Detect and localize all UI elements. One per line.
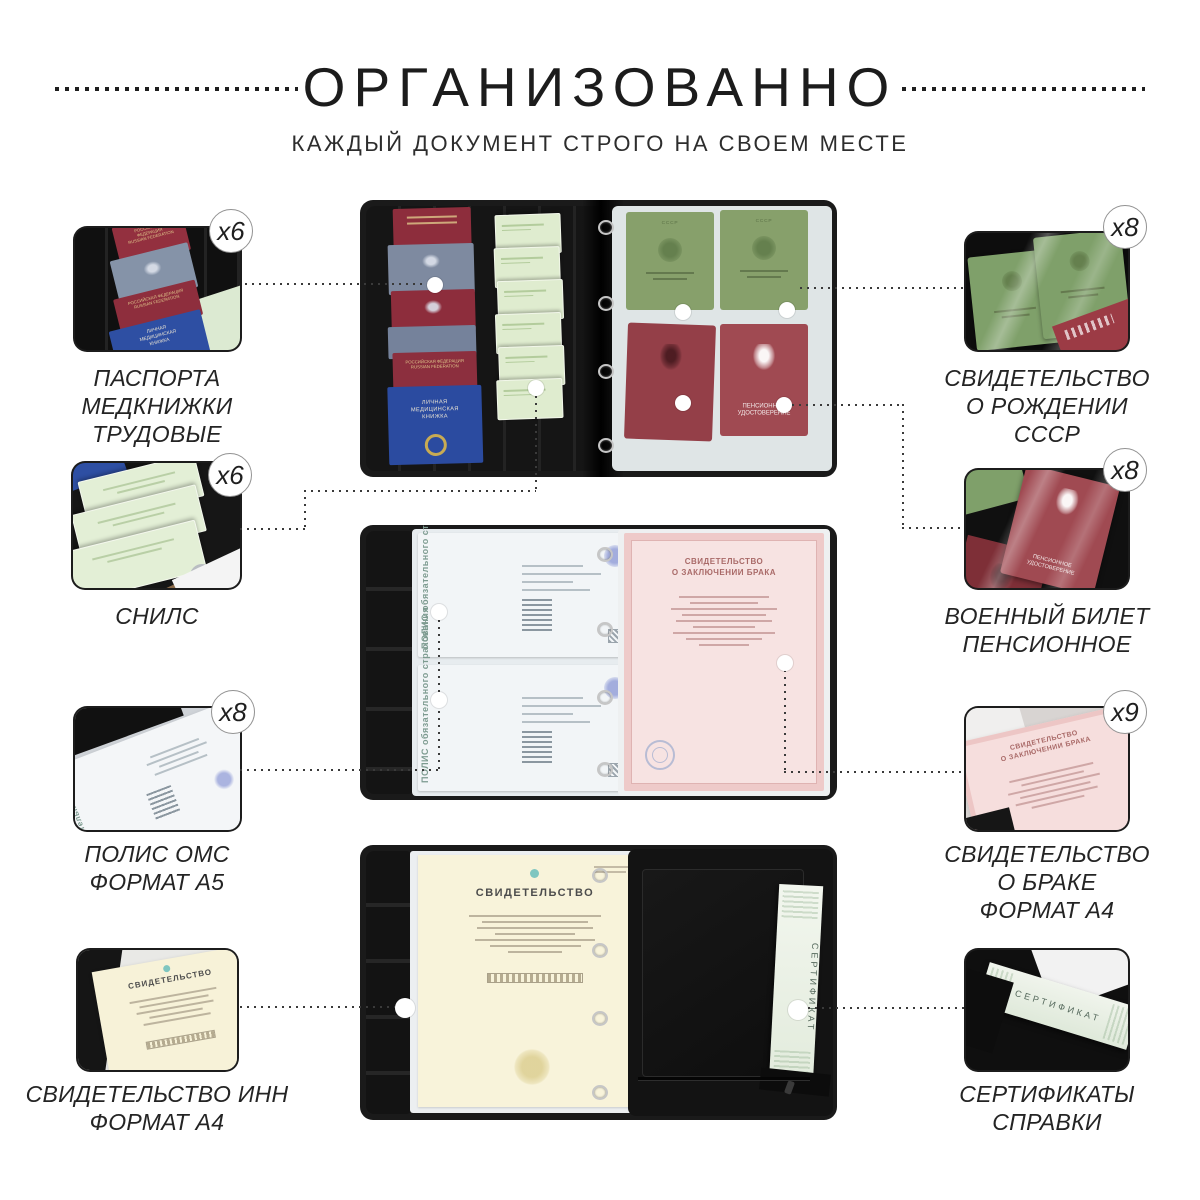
sleeve-hole	[788, 1000, 808, 1020]
binder-ring	[592, 868, 608, 883]
sleeve-hole	[776, 397, 792, 413]
binder-ring	[597, 547, 613, 562]
inn-certificate-document: СВИДЕТЕЛЬСТВО	[92, 950, 237, 1070]
count-badge: x9	[1103, 690, 1147, 734]
photo-organizer-spread-passports: РОССИЙСКАЯ ФЕДЕРАЦИЯ RUSSIAN FEDERATION …	[360, 200, 837, 477]
gold-text-line	[407, 215, 457, 218]
binder-ring	[598, 438, 614, 453]
certificate-title: СВИДЕТЕЛЬСТВО	[418, 887, 652, 899]
text-lines-placeholder	[730, 266, 798, 278]
crest-icon	[424, 300, 442, 314]
connector-line	[535, 396, 537, 492]
photo-certificates-pocket: СЕРТИФИКАТ	[966, 950, 1128, 1070]
binder-ring	[592, 1085, 608, 1100]
ussr-birth-certificate: СССР	[720, 210, 808, 310]
gold-seal-icon	[425, 434, 448, 457]
page-subtitle: КАЖДЫЙ ДОКУМЕНТ СТРОГО НА СВОЕМ МЕСТЕ	[0, 131, 1200, 157]
inn-certificate-document: СВИДЕТЕЛЬСТВО	[418, 855, 652, 1107]
military-id-red	[624, 322, 716, 441]
count-badge: x8	[1103, 448, 1147, 492]
polis-title: ПОЛИС обязательного страхования	[420, 607, 430, 783]
blue-stamp-icon	[211, 766, 237, 792]
count-badge: x8	[1103, 205, 1147, 249]
text-lines-placeholder	[502, 319, 554, 330]
text-lines-placeholder	[133, 728, 222, 781]
binder-ring	[598, 220, 614, 235]
gold-seal-icon	[514, 1049, 550, 1085]
gold-text-line	[407, 221, 457, 224]
sleeve-hole	[777, 655, 793, 671]
item-label-military-pension: ВОЕННЫЙ БИЛЕТ ПЕНСИОННОЕ	[915, 602, 1179, 658]
sleeve-hole	[431, 692, 447, 708]
item-label-inn: СВИДЕТЕЛЬСТВО ИНН ФОРМАТ А4	[25, 1080, 289, 1136]
emblem-icon	[659, 344, 682, 371]
binder-ring	[597, 690, 613, 705]
pocket-ridges	[366, 531, 416, 794]
sertifikat-title: СЕРТИФИКАТ	[771, 928, 821, 1046]
plastic-sleeve-gloss	[966, 470, 1128, 588]
tax-service-emblem-icon	[163, 965, 171, 973]
connector-line	[808, 1007, 964, 1009]
sleeve-hole	[427, 277, 443, 293]
connector-line	[240, 528, 306, 530]
oms-policy-document: ПОЛИС обязательного страхования	[418, 665, 652, 791]
plastic-sleeve-page: СССР СССР ПЕНСИОННОЕ УДОСТОВЕРЕНИЕ	[612, 206, 832, 471]
connector-line	[240, 769, 440, 771]
text-lines-placeholder	[505, 352, 557, 363]
passport-stack: РОССИЙСКАЯ ФЕДЕРАЦИЯ RUSSIAN FEDERATION …	[381, 205, 488, 470]
infographic-canvas: { "header": { "title": "ОРГАНИЗОВАННО", …	[0, 0, 1200, 1200]
blue-stamp-icon	[645, 740, 675, 770]
text-lines-placeholder	[636, 268, 704, 280]
text-lines-placeholder	[501, 253, 553, 264]
sleeve-hole	[395, 998, 415, 1018]
item-label-snils: СНИЛС	[25, 602, 289, 630]
sleeve-hole	[528, 380, 544, 396]
binder-ring	[592, 943, 608, 958]
photo-ussr-birth-certificates	[966, 233, 1128, 350]
count-badge: x6	[209, 209, 253, 253]
connector-line	[784, 670, 786, 773]
tax-service-emblem-icon	[530, 869, 539, 878]
item-label-certificates: СЕРТИФИКАТЫ СПРАВКИ	[915, 1080, 1179, 1136]
text-lines-placeholder	[502, 220, 554, 231]
connector-line	[304, 490, 306, 530]
marriage-certificate-title: СВИДЕТЕЛЬСТВО О ЗАКЛЮЧЕНИИ БРАКА	[631, 556, 817, 578]
ussr-label: СССР	[635, 221, 705, 226]
ussr-label: СССР	[729, 219, 799, 224]
passport-title: РОССИЙСКАЯ ФЕДЕРАЦИЯ RUSSIAN FEDERATION	[404, 359, 465, 371]
photo-marriage-certificate: СВИДЕТЕЛЬСТВО О ЗАКЛЮЧЕНИИ БРАКА	[966, 708, 1128, 830]
connector-line	[245, 283, 435, 285]
item-label-oms: ПОЛИС ОМС ФОРМАТ А5	[25, 840, 289, 896]
item-label-passports: ПАСПОРТА МЕДКНИЖКИ ТРУДОВЫЕ	[25, 364, 289, 448]
text-block-placeholder	[146, 785, 180, 820]
connector-line	[800, 287, 964, 289]
ussr-emblem-icon	[752, 236, 776, 260]
binder-ring	[597, 762, 613, 777]
connector-line	[784, 771, 964, 773]
item-label-marriage: СВИДЕТЕЛЬСТВО О БРАКЕ ФОРМАТ А4	[915, 840, 1179, 924]
text-lines-placeholder	[651, 592, 797, 646]
double-eagle-emblem-icon	[753, 344, 775, 370]
binder-ring	[592, 1011, 608, 1026]
medical-book-blue: ЛИЧНАЯ МЕДИЦИНСКАЯ КНИЖКА	[387, 385, 483, 465]
text-block-placeholder	[522, 731, 552, 765]
oms-policy-document: ПОЛИС обязательного страхования	[418, 533, 652, 657]
leather-zip-pocket-panel: СЕРТИФИКАТ	[628, 849, 833, 1116]
id-number-box	[487, 973, 583, 983]
pension-id-red: ПЕНСИОННОЕ УДОСТОВЕРЕНИЕ	[720, 324, 808, 436]
binder-ring	[598, 364, 614, 379]
connector-line	[304, 490, 536, 492]
id-number-box	[146, 1030, 216, 1050]
item-label-birth-certificate: СВИДЕТЕЛЬСТВО О РОЖДЕНИИ СССР	[915, 364, 1179, 448]
count-badge: x8	[211, 690, 255, 734]
text-lines-placeholder	[504, 286, 556, 297]
medical-book-title: ЛИЧНАЯ МЕДИЦИНСКАЯ КНИЖКА	[397, 398, 473, 422]
sleeve-hole	[779, 302, 795, 318]
ussr-birth-certificate: СССР	[626, 212, 714, 310]
connector-line	[902, 527, 964, 529]
emblem-icon	[422, 254, 440, 268]
zipper	[638, 1077, 810, 1080]
photo-organizer-spread-inn-certificates: СВИДЕТЕЛЬСТВО СЕРТИФИКАТ	[360, 845, 837, 1120]
title-dotted-line-right	[902, 87, 1145, 91]
marriage-certificate: СВИДЕТЕЛЬСТВО О ЗАКЛЮЧЕНИИ БРАКА	[624, 533, 824, 791]
sleeve-hole	[675, 395, 691, 411]
binder-ring	[597, 622, 613, 637]
connector-line	[902, 404, 904, 529]
pocket-flap	[759, 1067, 831, 1096]
emblem-icon	[142, 259, 163, 277]
ussr-emblem-icon	[658, 238, 682, 262]
photo-oms-policy: ПОЛИС обязательного страхования	[75, 708, 240, 830]
text-block-placeholder	[522, 599, 552, 633]
binder-ring	[598, 296, 614, 311]
connector-line	[240, 1006, 397, 1008]
sleeve-hole	[431, 604, 447, 620]
photo-organizer-spread-polis-marriage: ПОЛИС обязательного страхования ПОЛИС об…	[360, 525, 837, 800]
pocket-ridges	[366, 851, 414, 1114]
connector-line	[792, 404, 904, 406]
photo-inn-certificate: СВИДЕТЕЛЬСТВО	[78, 950, 237, 1070]
photo-military-pension-ids: ПЕНСИОННОЕ УДОСТОВЕРЕНИЕ	[966, 470, 1128, 588]
count-badge: x6	[208, 453, 252, 497]
certificate-in-pocket: СЕРТИФИКАТ	[769, 884, 823, 1086]
passport-title: РОССИЙСКАЯ ФЕДЕРАЦИЯ RUSSIAN FEDERATION	[124, 228, 176, 247]
sleeve-hole	[675, 304, 691, 320]
